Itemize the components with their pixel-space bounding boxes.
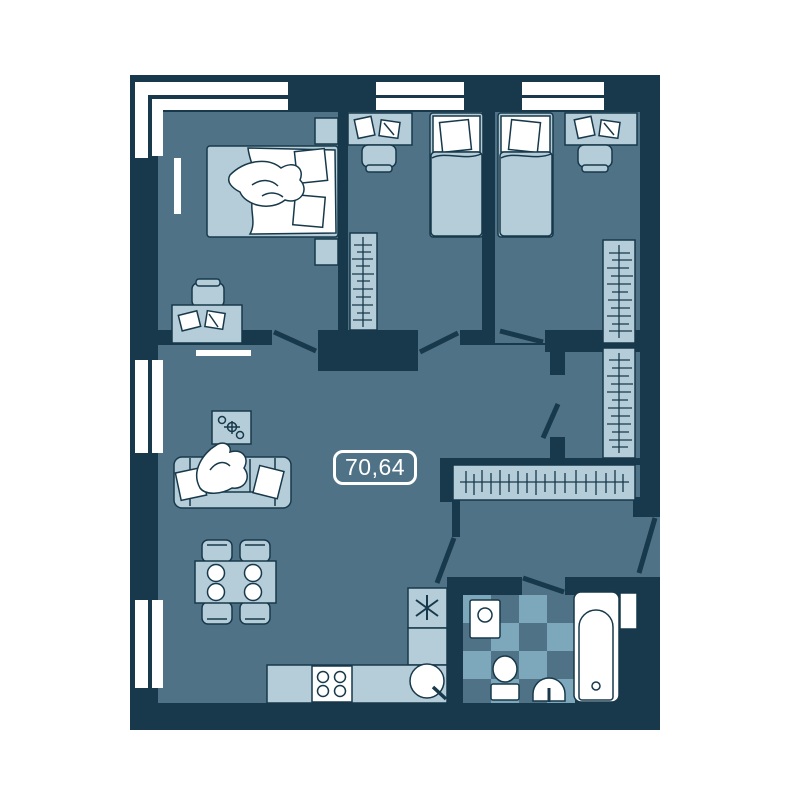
- wall-stub-tv: [318, 330, 418, 371]
- burner-icon: [335, 672, 346, 683]
- wall-kitchen-bath: [447, 595, 463, 703]
- hall-coat-rack: [453, 465, 635, 500]
- side-table: [212, 411, 251, 444]
- corner-window-outer-h: [135, 82, 288, 95]
- bedroom3-window-inner: [522, 98, 604, 110]
- burner-icon: [335, 686, 346, 697]
- dining-window-outer: [135, 600, 148, 688]
- laptop-icon: [205, 311, 225, 330]
- wall-dressing-top: [550, 345, 565, 375]
- corner-window-inner-v: [152, 99, 163, 156]
- wall-bed2-bed3: [482, 112, 495, 345]
- pillow-icon: [509, 120, 541, 153]
- corner-window-outer-v: [135, 82, 148, 158]
- wall-kitchen-door: [452, 500, 460, 537]
- dining-chair: [240, 602, 270, 624]
- single-bed-bedroom3: [498, 113, 553, 237]
- stove: [312, 666, 352, 702]
- wardrobe-bedroom3: [603, 240, 635, 343]
- burner-icon: [318, 672, 329, 683]
- tv-icon: [196, 350, 251, 356]
- single-bed-bedroom2: [430, 113, 483, 237]
- dining-chair: [202, 602, 232, 624]
- papers-icon: [354, 116, 375, 138]
- wall-entry-jamb: [633, 497, 660, 517]
- chair-bedroom3: [578, 145, 612, 167]
- papers-icon: [574, 116, 595, 138]
- counter-vertical: [408, 628, 447, 665]
- fridge: [408, 588, 447, 628]
- dining-table: [195, 561, 276, 603]
- plate-icon: [208, 584, 225, 601]
- plate-icon: [245, 565, 262, 582]
- burner-icon: [318, 686, 329, 697]
- papers-icon: [178, 311, 200, 331]
- bath-shelf: [620, 593, 637, 629]
- area-label: 70,64: [333, 450, 417, 485]
- wall-bed2-bottom: [460, 330, 495, 345]
- dining-chair: [240, 540, 270, 562]
- wall-hall-left: [440, 458, 453, 502]
- bathtub: [574, 592, 619, 702]
- bathroom-sink: [533, 678, 565, 702]
- dressing-wardrobe: [603, 348, 635, 458]
- pillow-icon: [440, 120, 472, 153]
- double-bed: [207, 146, 338, 237]
- floor-plan-image: 70,64: [0, 0, 800, 800]
- washing-machine: [470, 600, 500, 638]
- dining-window-inner: [152, 600, 163, 688]
- dining-chair: [202, 540, 232, 562]
- chair-bedroom2: [362, 145, 396, 167]
- nightstand-bottom: [315, 239, 338, 265]
- wall-above-coatrack: [440, 458, 640, 465]
- living-window-inner: [152, 360, 163, 453]
- floor-plan-svg: [0, 0, 800, 800]
- mirror: [174, 158, 181, 214]
- bedroom3-window-outer: [522, 82, 604, 95]
- nightstand-top: [315, 118, 338, 144]
- plate-icon: [208, 565, 225, 582]
- bedroom2-window-inner: [376, 98, 464, 110]
- wall-bath-top-left: [447, 577, 522, 595]
- plate-icon: [245, 584, 262, 601]
- wardrobe-bedroom2: [350, 233, 377, 330]
- living-window-outer: [135, 360, 148, 453]
- corner-window-inner-h: [152, 99, 288, 110]
- bedroom2-window-outer: [376, 82, 464, 95]
- wall-bed1-bed2: [338, 112, 348, 330]
